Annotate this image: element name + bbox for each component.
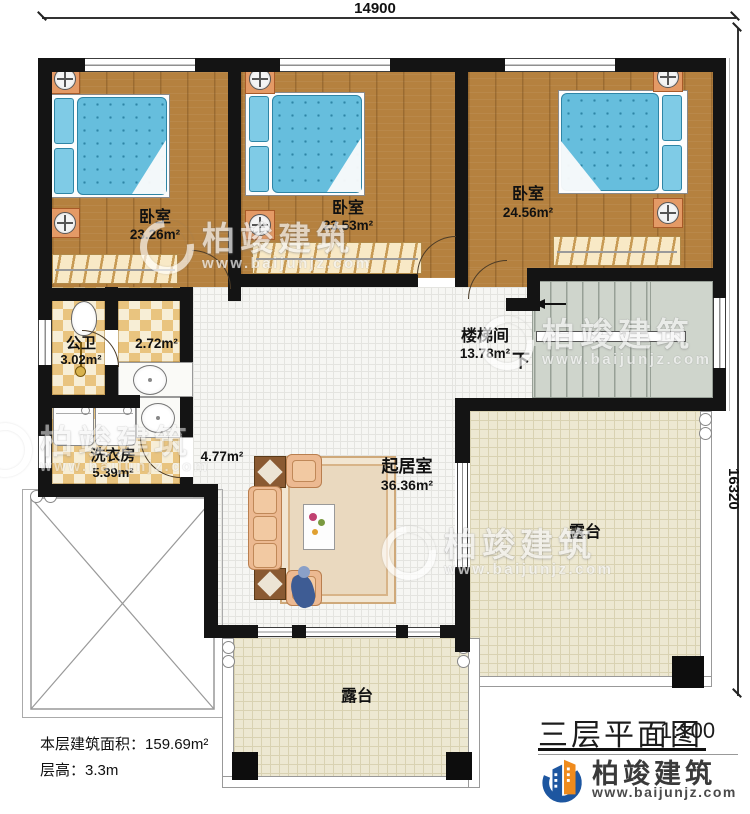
terrace-bottom-label: 露台 [322, 688, 392, 706]
eave-line [729, 58, 730, 411]
window [280, 58, 390, 72]
wall [38, 484, 218, 497]
wall [455, 398, 726, 411]
bathroom-area: 3.02m² [46, 353, 116, 367]
brand-logo-icon [540, 754, 588, 804]
wall [105, 287, 118, 330]
title-underline [538, 748, 706, 751]
side-table [254, 568, 286, 600]
wall [195, 58, 280, 72]
floor-drain-icon [75, 366, 86, 377]
bathroom-label: 公卫 [46, 336, 116, 353]
window [85, 58, 195, 72]
roof-below-x [30, 497, 215, 710]
wall [241, 274, 418, 287]
nightstand [245, 210, 275, 240]
stair-down-label: 下 [506, 352, 536, 372]
wall [38, 395, 140, 408]
wall [105, 365, 118, 395]
terrace-bottom-floor [234, 638, 468, 776]
pillow [249, 146, 269, 192]
plan-scale: 1:100 [660, 718, 715, 744]
pillow [54, 148, 74, 194]
lamp-icon [54, 212, 76, 234]
side-table [254, 456, 286, 488]
stairwell-label: 楼梯间 [445, 328, 525, 346]
armchair [286, 454, 322, 488]
right-dimension-value: 16320 [725, 468, 742, 510]
living-area: 36.36m² [352, 478, 462, 493]
living-label: 起居室 [352, 458, 462, 477]
floor-height-value: 3.3m [85, 762, 118, 779]
sliding-door [306, 627, 396, 637]
pillow [662, 145, 682, 191]
pillar [457, 655, 470, 668]
wall [527, 268, 540, 311]
floor-area-note: 本层建筑面积：159.69m² [40, 733, 208, 754]
wall [38, 58, 52, 320]
sink [141, 403, 175, 433]
railing [222, 776, 480, 788]
terrace-right-label: 露台 [550, 524, 620, 542]
wall [292, 625, 306, 638]
wall [228, 288, 241, 301]
top-dimension-value: 14900 [330, 0, 420, 17]
pillar [222, 655, 235, 668]
wardrobe [252, 242, 422, 274]
nightstand [653, 198, 683, 228]
bedroom3-area: 24.56m² [468, 206, 588, 221]
window [38, 436, 52, 468]
window [258, 627, 292, 637]
railing [700, 411, 712, 687]
sink [133, 365, 167, 395]
column [672, 656, 704, 688]
wall [455, 398, 470, 463]
wall [390, 58, 505, 72]
pillow [54, 98, 74, 144]
lamp-icon [657, 202, 679, 224]
dim-tick [730, 11, 740, 21]
terrace-right-floor [470, 411, 700, 676]
stair-handrail [536, 331, 686, 342]
lamp-icon [249, 214, 271, 236]
pillar [222, 641, 235, 654]
window [713, 298, 726, 368]
wall [713, 58, 726, 298]
bedroom2-area: 23.53m² [288, 219, 408, 234]
stair-treads-upper [534, 281, 650, 332]
right-dimension-line [737, 28, 739, 696]
nightstand [50, 208, 80, 238]
wall [455, 567, 470, 652]
wall [204, 625, 258, 638]
floor-area-value: 159.69m² [145, 736, 208, 753]
pillar [699, 413, 712, 426]
pillar [699, 427, 712, 440]
bedroom2-label: 卧室 [288, 200, 408, 218]
pillow [249, 96, 269, 142]
wall [204, 497, 218, 638]
laundry-label: 洗衣房 [70, 448, 156, 465]
wall [228, 72, 241, 290]
wall [180, 397, 193, 437]
brand-website: www.baijunjz.com [592, 784, 737, 800]
laundry-area: 5.39m² [70, 466, 156, 480]
person-figure [292, 566, 316, 610]
column [232, 752, 258, 780]
wardrobe [52, 254, 178, 284]
wall [615, 58, 726, 72]
wall [396, 625, 408, 638]
floor-area-label: 本层建筑面积： [40, 736, 145, 753]
bedroom1-area: 23.26m² [95, 228, 215, 243]
stair-direction-arrow [544, 303, 566, 305]
bedroom1-label: 卧室 [95, 209, 215, 227]
hallway-area: 4.77m² [186, 450, 258, 465]
wall [455, 72, 468, 287]
sofa [248, 486, 282, 570]
washing-machine [95, 402, 136, 446]
top-dimension-line [42, 17, 736, 19]
window [408, 627, 440, 637]
column [446, 752, 472, 780]
watermark-logo-icon [0, 412, 43, 488]
coffee-table [303, 504, 335, 550]
floor-height-label: 层高： [40, 762, 85, 779]
wardrobe [553, 236, 681, 266]
wall [180, 477, 193, 484]
dim-tick [37, 11, 47, 21]
vanity-area: 2.72m² [120, 337, 193, 352]
window [505, 58, 615, 72]
floor-plan-canvas: 14900 16320 [0, 0, 750, 814]
floor-height-note: 层高：3.3m [40, 759, 118, 780]
washing-machine [53, 402, 94, 446]
bedroom3-label: 卧室 [468, 186, 588, 204]
stair-treads-lower [534, 346, 650, 398]
wall [540, 268, 726, 281]
pillow [662, 95, 682, 141]
